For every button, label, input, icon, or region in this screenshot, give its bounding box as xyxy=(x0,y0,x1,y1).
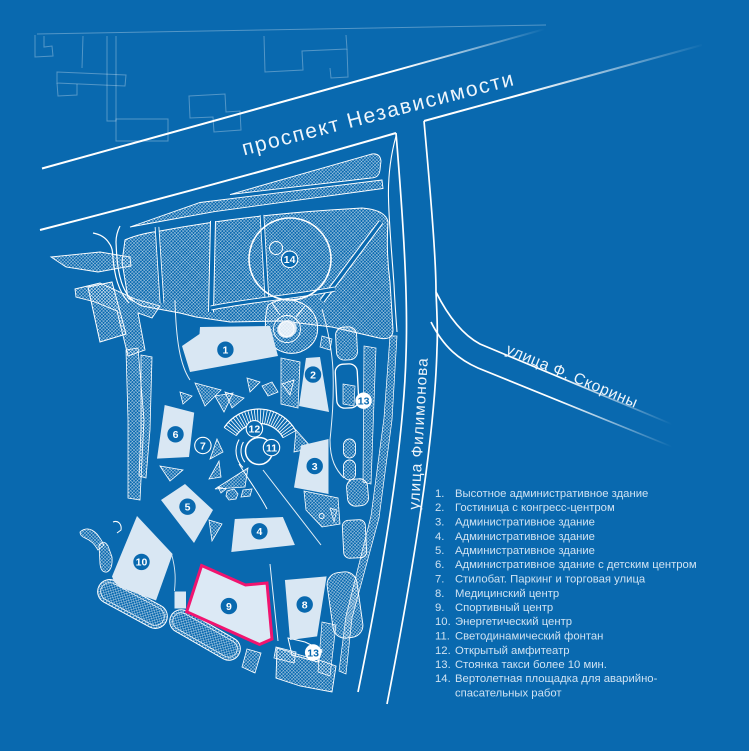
svg-text:13.: 13. xyxy=(435,659,451,671)
svg-text:Энергетический центр: Энергетический центр xyxy=(455,616,572,628)
svg-text:9.: 9. xyxy=(435,602,444,614)
svg-text:Административное здание: Административное здание xyxy=(455,517,595,529)
svg-text:Вертолетная площадка для авари: Вертолетная площадка для аварийно- xyxy=(455,673,658,685)
svg-text:Административное здание: Административное здание xyxy=(455,531,595,543)
svg-text:2: 2 xyxy=(310,369,316,381)
svg-text:10: 10 xyxy=(136,557,148,569)
svg-text:Административное здание с детс: Административное здание с детским центро… xyxy=(455,559,697,571)
svg-text:10.: 10. xyxy=(435,616,451,628)
svg-text:12: 12 xyxy=(249,424,261,436)
svg-text:Открытый амфитеатр: Открытый амфитеатр xyxy=(455,645,570,657)
svg-text:спасательных работ: спасательных работ xyxy=(455,688,562,700)
svg-text:Административное здание: Административное здание xyxy=(455,545,595,557)
svg-text:13: 13 xyxy=(307,647,319,659)
svg-text:1: 1 xyxy=(222,345,228,357)
svg-text:Спортивный центр: Спортивный центр xyxy=(455,602,553,614)
svg-text:14.: 14. xyxy=(435,673,451,685)
svg-text:Гостиница с конгресс-центром: Гостиница с конгресс-центром xyxy=(455,502,615,514)
svg-text:7: 7 xyxy=(200,440,206,452)
svg-text:Светодинамический фонтан: Светодинамический фонтан xyxy=(455,631,603,643)
svg-text:Медицинский центр: Медицинский центр xyxy=(455,588,559,600)
svg-text:5.: 5. xyxy=(435,545,444,557)
svg-text:3.: 3. xyxy=(435,517,444,529)
svg-text:Стилобат. Паркинг и торговая у: Стилобат. Паркинг и торговая улица xyxy=(455,574,646,586)
svg-text:1.: 1. xyxy=(435,488,444,500)
svg-text:13: 13 xyxy=(358,396,370,408)
svg-text:Высотное административное здан: Высотное административное здание xyxy=(455,488,648,500)
svg-text:8.: 8. xyxy=(435,588,444,600)
svg-text:6: 6 xyxy=(173,429,179,441)
svg-text:4.: 4. xyxy=(435,531,444,543)
svg-text:4: 4 xyxy=(256,526,262,538)
svg-text:2.: 2. xyxy=(435,502,444,514)
svg-text:8: 8 xyxy=(302,599,308,611)
svg-text:11: 11 xyxy=(266,442,277,454)
svg-text:14: 14 xyxy=(284,254,296,266)
svg-text:5: 5 xyxy=(185,502,191,514)
svg-text:6.: 6. xyxy=(435,559,444,571)
svg-text:3: 3 xyxy=(312,461,318,473)
svg-text:9: 9 xyxy=(226,601,232,613)
svg-text:12.: 12. xyxy=(435,645,451,657)
svg-text:7.: 7. xyxy=(435,574,444,586)
svg-text:Стоянка такси более 10 мин.: Стоянка такси более 10 мин. xyxy=(455,659,607,671)
svg-text:11.: 11. xyxy=(435,631,450,643)
